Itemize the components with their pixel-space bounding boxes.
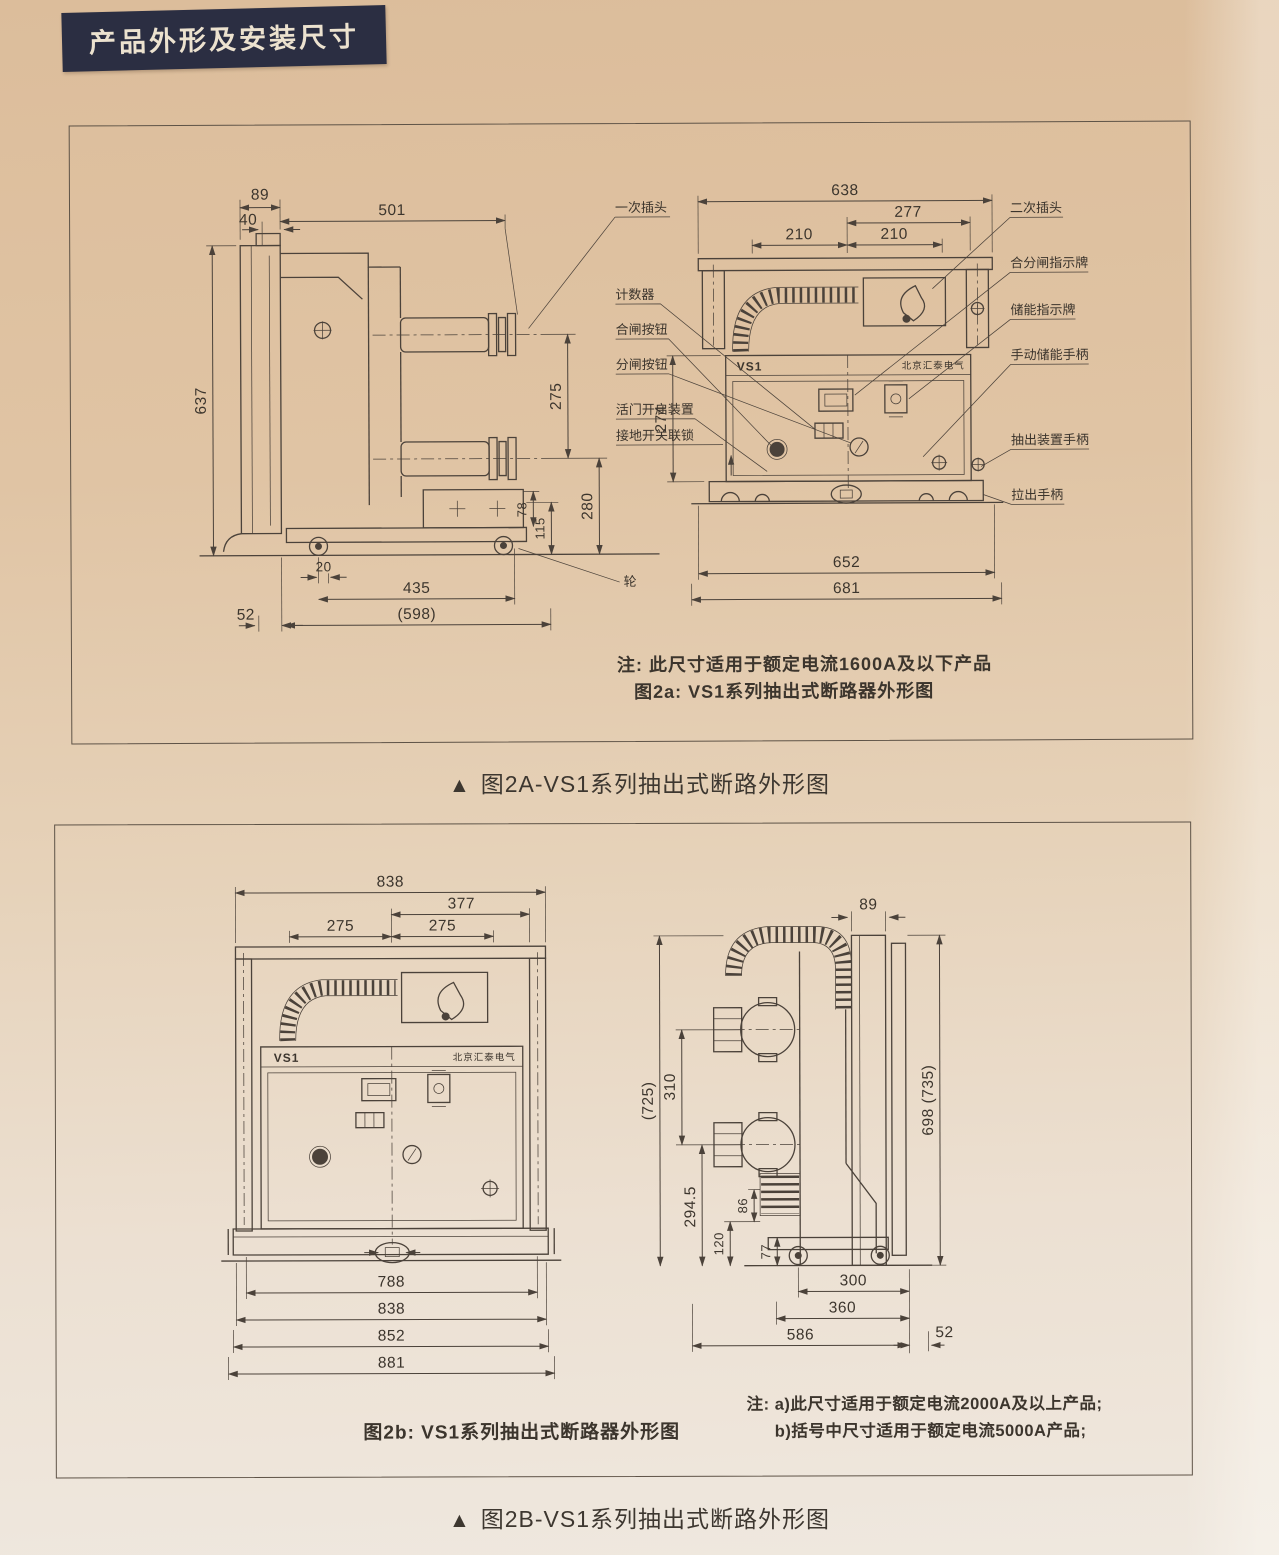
dim-377-label: 377 — [448, 895, 475, 912]
base-and-wheels — [199, 527, 659, 556]
front-panel-2b: VS1 北京汇泰电气 — [261, 1046, 524, 1245]
figure-2b-box: VS1 北京汇泰电气 — [54, 822, 1193, 1479]
fig2a-note-line1: 注: 此尺寸适用于额定电流1600A及以下产品 — [617, 652, 992, 675]
callout-shutter-opening-device: 活门开启装置 — [616, 402, 694, 417]
dim-275-label: 275 — [548, 383, 565, 410]
dim-275a-label: 275 — [327, 918, 354, 935]
figure-2a-drawing: 89 40 501 637 275 280 78 115 20 435 (598… — [70, 122, 1193, 741]
mechanism-box — [423, 489, 523, 527]
panel-target-mark — [931, 455, 947, 471]
dim-881-label: 881 — [378, 1355, 405, 1372]
callout-wheel: 轮 — [624, 574, 637, 589]
front-base-2b — [221, 1228, 561, 1263]
dim-20-label: 20 — [316, 559, 332, 574]
dim-52b-label: 52 — [935, 1324, 953, 1341]
dim-586-label: 586 — [787, 1327, 814, 1344]
dim-838t-label: 838 — [377, 874, 404, 891]
base-interlock — [831, 485, 861, 503]
dim-115-label: 115 — [532, 517, 547, 539]
dim-210a-label: 210 — [785, 226, 812, 243]
dim-210b-label: 210 — [880, 226, 907, 243]
callout-secondary-plug: 二次插头 — [1010, 200, 1062, 215]
dim-86-label: 86 — [735, 1198, 750, 1214]
fig2b-label: 图2b: VS1系列抽出式断路器外形图 — [363, 1420, 680, 1444]
open-button-mark — [850, 438, 868, 456]
dim-310-label: 310 — [662, 1073, 679, 1100]
front-panel: VS1 北京汇泰电气 — [726, 355, 972, 492]
close-button-2b — [312, 1149, 328, 1165]
flexible-conduit — [732, 287, 858, 352]
open-button-2b — [403, 1146, 421, 1164]
lower-bellows — [760, 1174, 800, 1216]
callout-pull-out-handle: 拉出手柄 — [1011, 487, 1063, 502]
callout-counter: 计数器 — [615, 287, 654, 302]
callout-withdraw-device-handle: 抽出装置手柄 — [1011, 432, 1089, 447]
dim-637-label: 637 — [193, 387, 210, 414]
counter-window-2b — [356, 1113, 384, 1128]
fig2b-note-line1: 注: a)此尺寸适用于额定电流2000A及以上产品; — [747, 1393, 1103, 1414]
right-rail-marks — [970, 301, 985, 471]
dim-435-label: 435 — [403, 580, 430, 597]
fig2a-side-dims: 89 40 501 637 275 280 78 115 20 435 (598… — [192, 185, 637, 632]
dim-788-label: 788 — [378, 1274, 405, 1291]
fig2b-front-dims: 838 377 275 275 788 838 852 881 — [227, 873, 554, 1380]
caption-2a: ▲图2A-VS1系列抽出式断路外形图 — [0, 765, 1279, 799]
section-header-badge: 产品外形及安装尺寸 — [61, 5, 386, 72]
charge-indicator-window — [885, 381, 907, 417]
dim-852-label: 852 — [378, 1328, 405, 1345]
section-header-title: 产品外形及安装尺寸 — [89, 22, 360, 59]
target-mark-2b — [481, 1179, 499, 1197]
figure-marker-icon-2: ▲ — [449, 1509, 471, 1532]
dim-300-label: 300 — [840, 1272, 867, 1289]
callout-manual-charging-handle: 手动储能手柄 — [1011, 347, 1089, 362]
figure-2b-drawing: VS1 北京汇泰电气 — [55, 823, 1189, 1475]
callout-earthing-switch-interlock: 接地开关联锁 — [616, 428, 694, 443]
close-button-mark — [770, 442, 785, 457]
dim-52-label: 52 — [237, 607, 255, 624]
caption-2b-text: 图2B-VS1系列抽出式断路外形图 — [481, 1506, 830, 1532]
base-interlock-2b — [375, 1243, 409, 1263]
panel-brand-2a: 北京汇泰电气 — [902, 360, 965, 372]
indicator-window-2b — [362, 1079, 396, 1101]
callout-open-button: 分闸按钮 — [616, 357, 668, 372]
dim-838b-label: 838 — [378, 1301, 405, 1318]
dim-638-label: 638 — [831, 182, 858, 199]
upper-pole-bushing — [372, 313, 540, 356]
fig2b-note-line2: b)括号中尺寸适用于额定电流5000A产品; — [775, 1420, 1087, 1441]
dim-89b-label: 89 — [859, 896, 877, 913]
top-handle-corrugation — [725, 926, 851, 1009]
figure-2a-box: 89 40 501 637 275 280 78 115 20 435 (598… — [69, 121, 1194, 745]
secondary-plug-2b — [402, 972, 488, 1022]
panel-brand-2b: 北京汇泰电气 — [453, 1051, 516, 1063]
dim-2945-label: 294.5 — [682, 1186, 699, 1227]
flexible-conduit-2b — [280, 980, 398, 1041]
panel-logo-2a: VS1 — [737, 359, 763, 373]
fig2b-side-view — [713, 926, 932, 1266]
panel-logo-2b: VS1 — [274, 1051, 300, 1065]
dim-501-label: 501 — [378, 202, 405, 219]
callout-primary-plug: 一次插头 — [615, 200, 667, 215]
callout-charge-indicator: 储能指示牌 — [1010, 302, 1075, 317]
caption-2b: ▲图2B-VS1系列抽出式断路外形图 — [0, 1500, 1279, 1534]
fig2a-front-view: VS1 北京汇泰电气 — [690, 257, 1003, 503]
dim-275b-label: 275 — [429, 917, 456, 934]
dim-40-label: 40 — [239, 212, 257, 229]
fig2b-front-view: VS1 北京汇泰电气 — [220, 946, 561, 1263]
figure-marker-icon: ▲ — [449, 774, 471, 797]
dim-78-label: 78 — [514, 502, 529, 518]
dim-277-label: 277 — [894, 204, 921, 221]
charge-window-2b — [428, 1070, 450, 1106]
frame-bolt-mark — [314, 321, 332, 339]
dim-280-label: 280 — [579, 492, 596, 519]
dim-652-label: 652 — [833, 554, 860, 571]
dim-681-label: 681 — [833, 580, 860, 597]
fig2a-notes: 注: 此尺寸适用于额定电流1600A及以下产品 图2a: VS1系列抽出式断路器… — [617, 652, 992, 702]
dim-120-label: 120 — [711, 1232, 726, 1255]
fig2a-note-line2: 图2a: VS1系列抽出式断路器外形图 — [634, 680, 934, 702]
dim-77-label: 77 — [758, 1244, 773, 1260]
front-base — [691, 480, 1003, 503]
dim-89-label: 89 — [251, 187, 269, 204]
fig2a-front-dims: 638 277 210 210 274 652 681 — [652, 181, 1002, 606]
fig2b-notes: 注: a)此尺寸适用于额定电流2000A及以上产品; b)括号中尺寸适用于额定电… — [747, 1393, 1103, 1441]
lower-pole-bushing — [373, 437, 541, 480]
callout-open-close-indicator: 合分闸指示牌 — [1010, 255, 1088, 270]
dim-698-label: 698 (735) — [920, 1065, 937, 1136]
callout-close-button: 合闸按钮 — [616, 322, 668, 337]
dim-360-label: 360 — [829, 1299, 856, 1316]
caption-2a-text: 图2A-VS1系列抽出式断路外形图 — [481, 771, 830, 797]
secondary-plug-body — [863, 278, 945, 326]
dim-598-label: (598) — [397, 606, 436, 623]
dim-725-label: (725) — [640, 1082, 657, 1121]
